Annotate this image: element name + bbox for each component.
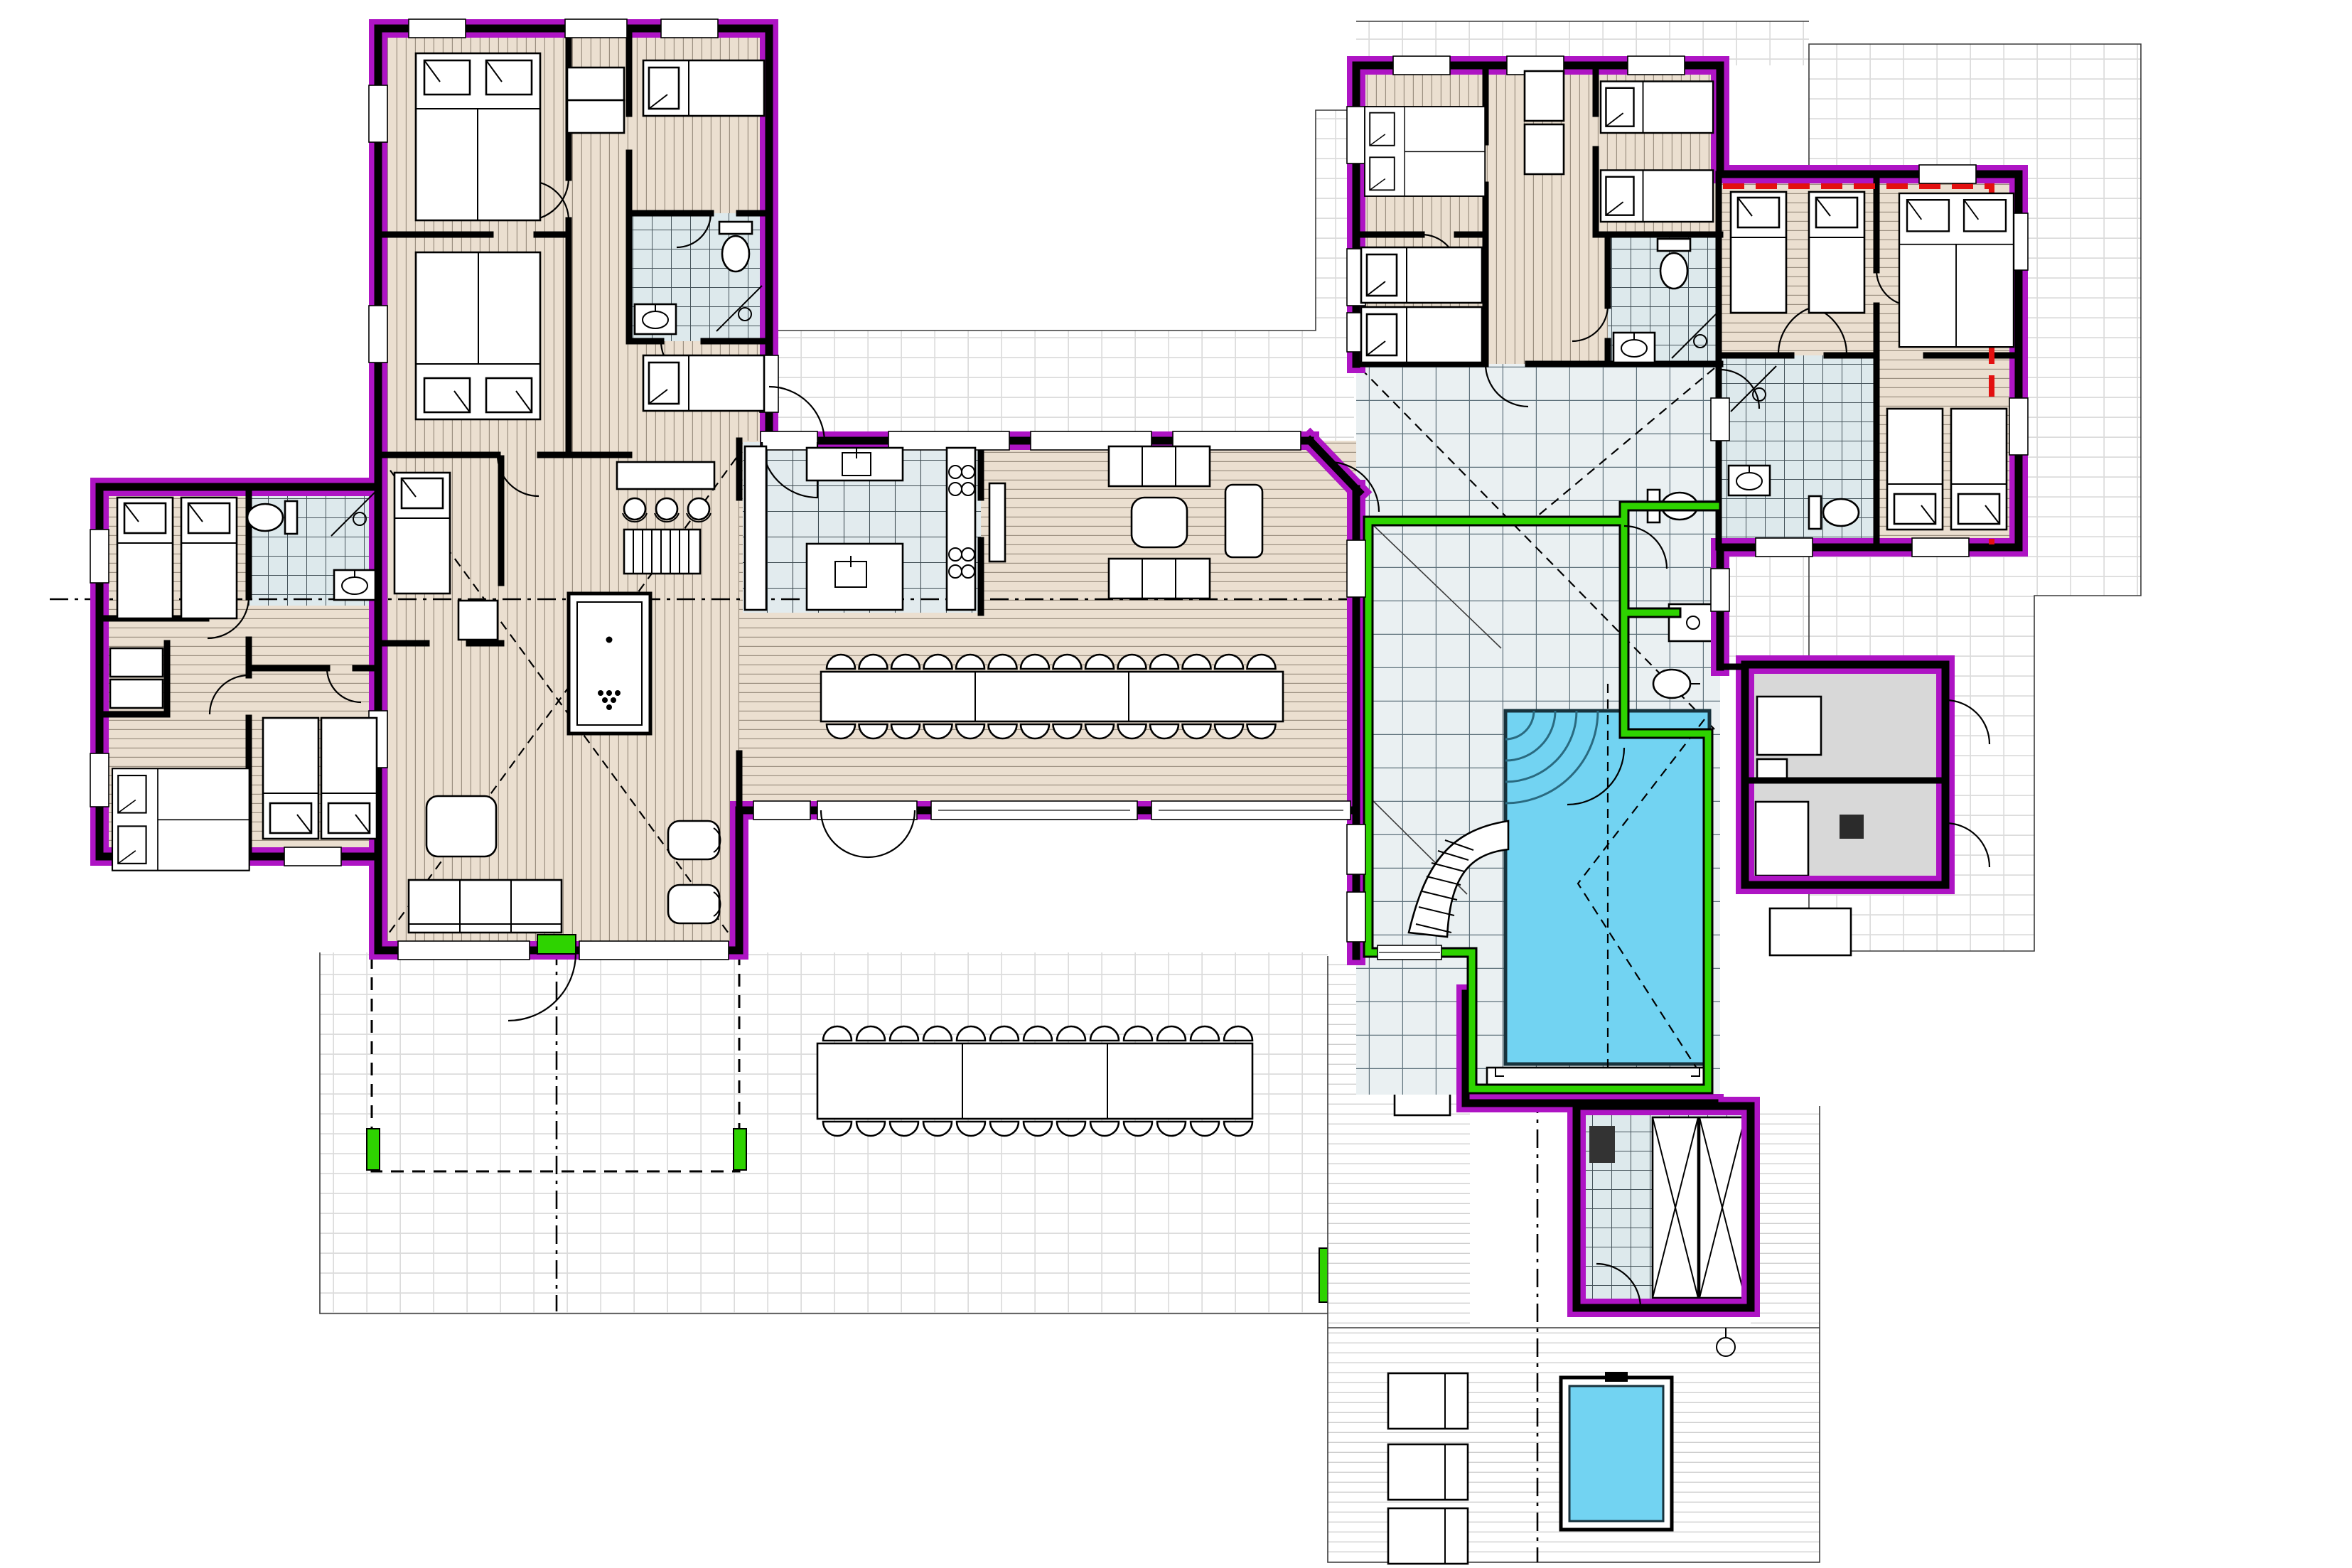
side-table-icon (426, 796, 496, 857)
washbasin-icon (1729, 466, 1770, 495)
toilet-icon (1809, 496, 1859, 529)
closet-icon (110, 648, 163, 677)
bar-stool-icon (655, 498, 679, 522)
sauna-bench-icon (1699, 1117, 1745, 1298)
shelf-icon (624, 530, 700, 574)
toilet-icon (719, 222, 752, 272)
sun-lounger-icon (1388, 1444, 1468, 1500)
kitchen-counter (745, 446, 766, 610)
outdoor-dining-table (817, 1043, 1252, 1119)
single-bed-icon (321, 718, 377, 839)
cooktop-icon (947, 448, 975, 610)
pergola-post (367, 1129, 380, 1170)
single-bed-icon (1809, 192, 1864, 313)
sun-lounger-icon (1388, 1508, 1468, 1564)
single-bed-icon (1601, 170, 1713, 222)
washbasin-icon (635, 304, 676, 334)
sofa-icon (1109, 559, 1210, 598)
courtyard-terrace (769, 110, 1354, 441)
washbasin-icon (1613, 333, 1655, 363)
sun-lounger-icon (1388, 1373, 1468, 1429)
double-bed-icon (1899, 193, 2014, 347)
single-bed-icon (1951, 409, 2007, 530)
sauna-bench-icon (1653, 1117, 1698, 1298)
armchair-icon (1225, 485, 1262, 557)
closet-icon (1525, 124, 1564, 174)
closet-icon (1525, 71, 1564, 121)
kitchen-island (807, 544, 903, 610)
double-bed-icon (416, 252, 540, 419)
toilet-icon (247, 501, 297, 534)
pergola-post (734, 1129, 746, 1170)
single-bed-icon (263, 718, 318, 839)
deck-east-strip (1751, 1106, 1820, 1328)
equipment-pad (1770, 908, 1851, 955)
single-bed-icon (1601, 81, 1713, 133)
single-bed-icon (643, 355, 764, 411)
single-bed-icon (1731, 192, 1786, 313)
single-bed-icon (1887, 409, 1943, 530)
sofa-icon (409, 880, 562, 933)
single-bed-icon (1361, 307, 1482, 363)
closet-icon (110, 680, 163, 708)
single-bed-icon (643, 60, 764, 116)
double-bed-icon (112, 768, 249, 871)
armchair-icon (668, 821, 720, 859)
floor-plan-canvas (0, 0, 2352, 1568)
sauna (1577, 1106, 1751, 1308)
tv-bench-icon (989, 483, 1005, 562)
single-bed-icon (394, 473, 450, 594)
sauna-heater-icon (1589, 1126, 1615, 1163)
terrace-door-green (537, 935, 576, 954)
bar-stool-icon (623, 498, 647, 522)
single-bed-icon (1361, 247, 1482, 303)
kitchen-island (807, 448, 903, 480)
washbasin-icon (1653, 670, 1690, 698)
armchair-icon (668, 885, 720, 923)
terrace-behind-hall (1724, 547, 1809, 667)
single-bed-icon (117, 498, 173, 618)
washbasin-icon (334, 570, 375, 600)
single-bed-icon (181, 498, 237, 618)
billiard-table-icon (569, 594, 650, 734)
double-bed-icon (416, 53, 540, 220)
bar-stool-icon (687, 498, 711, 522)
double-bed-icon (1365, 107, 1485, 196)
coffee-table-icon (1132, 498, 1187, 547)
hot-tub (1561, 1372, 1672, 1530)
toilet-icon (1658, 239, 1690, 289)
closet-icon (567, 100, 624, 133)
indoor-dining-table (821, 672, 1283, 721)
closet-icon (458, 601, 498, 640)
closet-icon (567, 68, 624, 100)
floor-plan-page (0, 0, 2352, 1568)
sofa-icon (1109, 446, 1210, 486)
